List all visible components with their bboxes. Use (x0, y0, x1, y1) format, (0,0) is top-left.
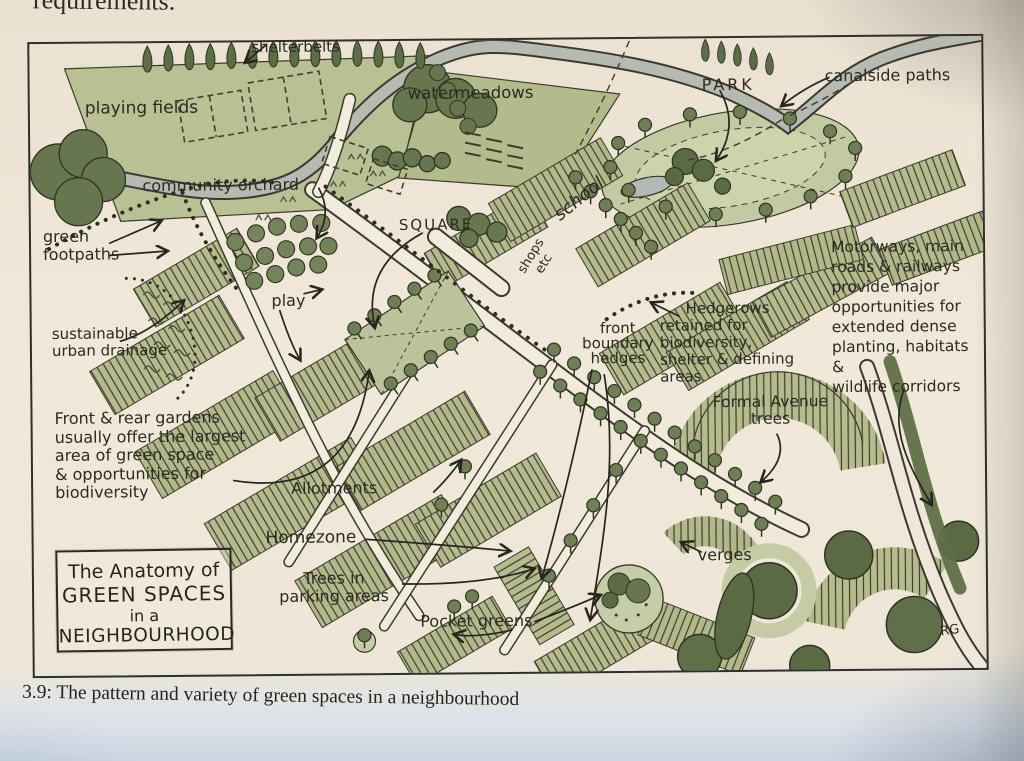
label-playing-fields: playing fields (85, 99, 198, 119)
label-trees-in-parking: Trees in parking areas (268, 569, 400, 606)
label-canalside-paths: canalside paths (824, 66, 950, 85)
artist-initials: RG (939, 623, 960, 640)
figure-title-box: The Anatomy of GREEN SPACES in a NEIGHBO… (55, 548, 233, 653)
label-front-boundary-hedges: front boundary hedges (562, 321, 674, 367)
label-community-orchard: community orchard (142, 176, 299, 195)
page-body-text-cropped: requirements. (33, 0, 176, 17)
label-play: play (271, 292, 305, 310)
label-shelterbelts: shelterbelts (251, 38, 340, 56)
pocket-green-small (353, 629, 375, 653)
label-motorways: Motorways, main roads & railways provide… (831, 236, 984, 397)
label-formal-avenue-trees: Formal Avenue trees (708, 393, 832, 429)
label-square: SQUARE (399, 216, 474, 233)
label-front-rear-gardens: Front & rear gardens usually offer the l… (54, 408, 259, 502)
label-verges: verges (698, 546, 752, 564)
label-hedgerows: Hedgerows retained for biodiversity, she… (660, 299, 821, 385)
label-suds: sustainable urban drainage (52, 325, 167, 360)
title-line-1: The Anatomy of (57, 559, 229, 584)
title-line-2: GREEN SPACES (58, 581, 230, 608)
label-pocket-greens: Pocket greens (420, 612, 532, 631)
pocket-green-large (595, 565, 664, 634)
label-allotments: Allotments (291, 479, 377, 498)
label-homezone: Homezone (266, 528, 357, 548)
figure-frame: shelterbelts playing fields watermeadows… (27, 34, 989, 678)
label-water-meadows: watermeadows (408, 84, 534, 104)
label-green-footpaths: green footpaths (43, 227, 120, 263)
figure-caption: 3.9: The pattern and variety of green sp… (22, 682, 742, 715)
label-park: PARK (702, 76, 755, 94)
title-line-4: NEIGHBOURHOOD (59, 624, 231, 648)
